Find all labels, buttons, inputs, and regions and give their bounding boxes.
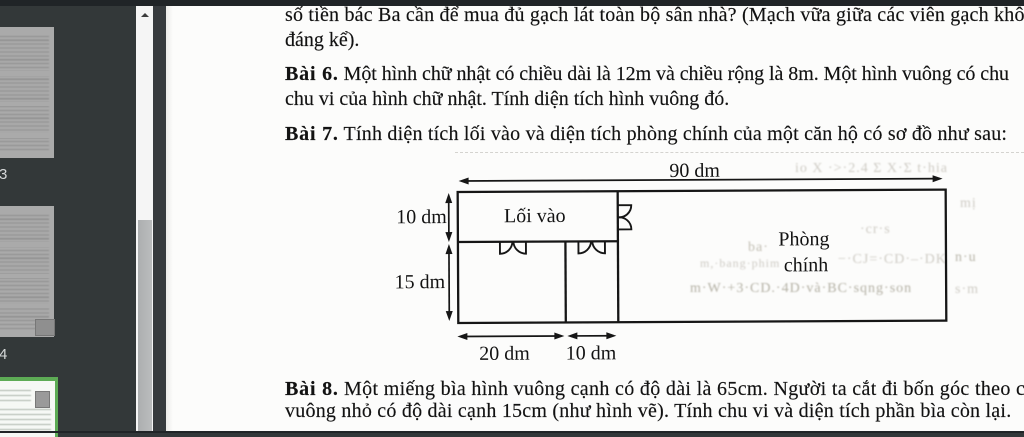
- svg-text:10 dm: 10 dm: [566, 342, 617, 364]
- svg-text:10 dm: 10 dm: [396, 206, 447, 228]
- svg-text:15 dm: 15 dm: [394, 271, 445, 293]
- svg-text:Lối vào: Lối vào: [504, 205, 566, 227]
- svg-text:90 dm: 90 dm: [669, 160, 720, 182]
- svg-text:chính: chính: [784, 254, 829, 276]
- svg-text:20 dm: 20 dm: [479, 343, 530, 365]
- svg-text:Phòng: Phòng: [778, 228, 829, 250]
